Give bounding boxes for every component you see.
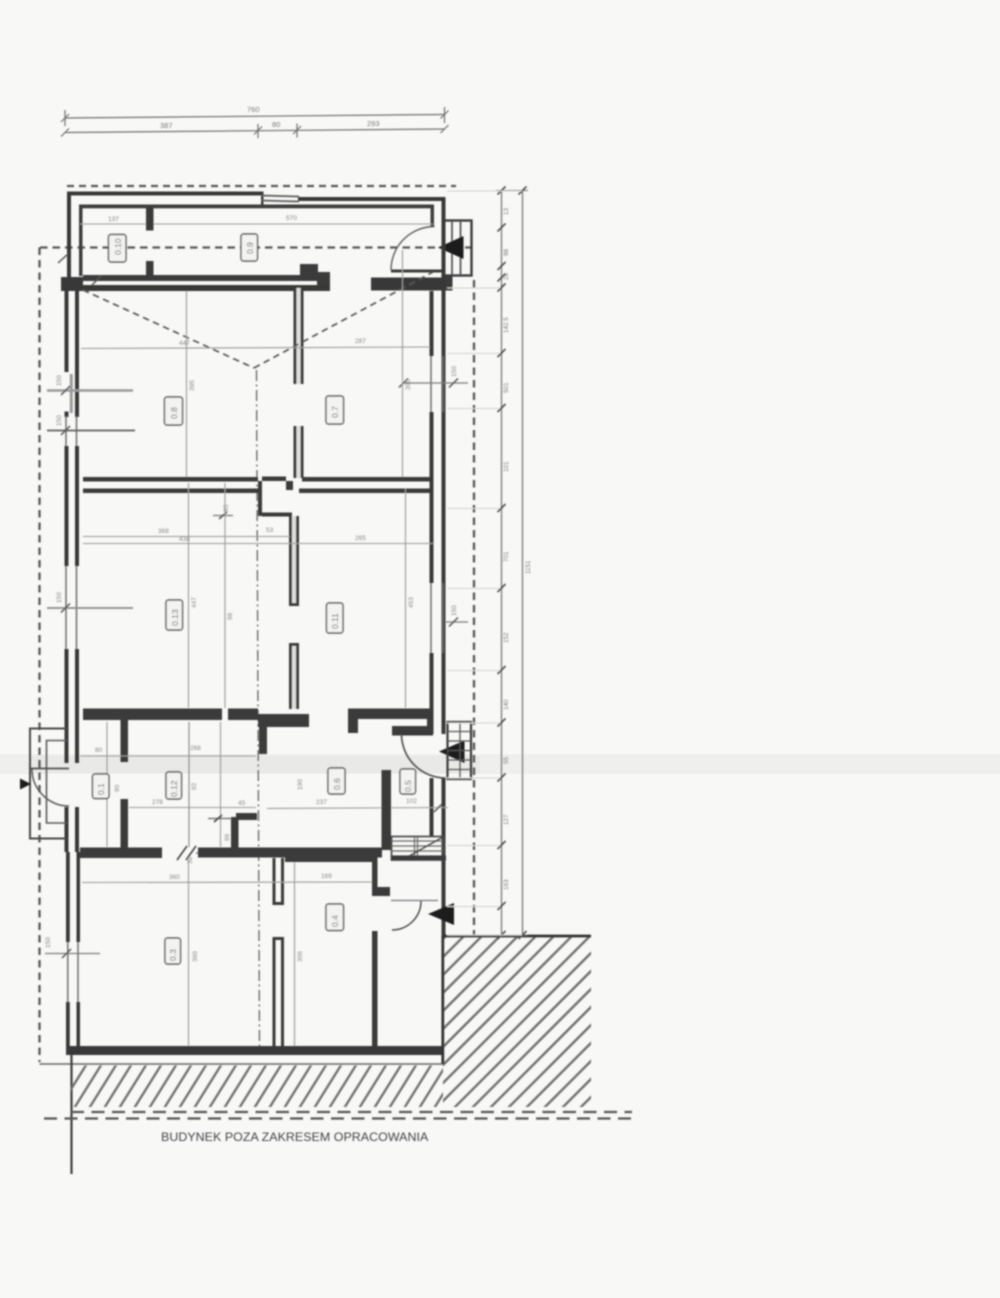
svg-text:150: 150 xyxy=(56,375,63,386)
svg-text:0.7: 0.7 xyxy=(330,406,340,418)
svg-text:95: 95 xyxy=(223,504,230,512)
svg-text:268: 268 xyxy=(190,745,201,752)
svg-text:140: 140 xyxy=(503,699,510,710)
svg-text:142.5: 142.5 xyxy=(503,317,510,333)
svg-text:447: 447 xyxy=(179,340,190,347)
svg-text:0.5: 0.5 xyxy=(403,780,413,792)
svg-text:45: 45 xyxy=(238,800,246,807)
svg-text:0.8: 0.8 xyxy=(169,407,179,419)
svg-text:278: 278 xyxy=(152,799,163,806)
svg-text:0.11: 0.11 xyxy=(330,613,340,629)
svg-text:701: 701 xyxy=(503,551,510,562)
svg-text:293: 293 xyxy=(367,119,380,128)
svg-text:92: 92 xyxy=(191,782,198,790)
svg-text:150: 150 xyxy=(56,592,63,603)
svg-text:501: 501 xyxy=(503,382,510,393)
svg-text:387: 387 xyxy=(160,121,173,130)
svg-text:0.4: 0.4 xyxy=(330,915,340,927)
svg-text:0.13: 0.13 xyxy=(170,609,180,626)
svg-text:80: 80 xyxy=(95,747,103,754)
svg-text:BUDYNEK POZA ZAKRESEM OPRACOWA: BUDYNEK POZA ZAKRESEM OPRACOWANIA xyxy=(161,1130,429,1144)
svg-text:137: 137 xyxy=(108,216,119,223)
svg-text:360: 360 xyxy=(169,874,180,881)
svg-text:265: 265 xyxy=(355,535,366,542)
svg-text:395: 395 xyxy=(189,380,196,391)
svg-text:390: 390 xyxy=(405,379,412,390)
svg-text:360: 360 xyxy=(192,951,199,962)
svg-text:28: 28 xyxy=(503,272,510,280)
svg-text:0.1: 0.1 xyxy=(96,783,106,795)
svg-text:163: 163 xyxy=(503,879,510,890)
svg-text:190: 190 xyxy=(297,779,304,790)
svg-text:0.6: 0.6 xyxy=(332,778,342,790)
svg-text:447: 447 xyxy=(191,597,198,608)
svg-text:453: 453 xyxy=(408,597,415,608)
svg-text:0.9: 0.9 xyxy=(245,242,255,254)
svg-text:169: 169 xyxy=(321,873,332,880)
svg-text:1151: 1151 xyxy=(525,560,532,574)
svg-text:150: 150 xyxy=(451,366,458,377)
svg-text:150: 150 xyxy=(451,605,458,616)
svg-text:152: 152 xyxy=(503,632,510,643)
svg-text:306: 306 xyxy=(297,951,304,962)
svg-text:90: 90 xyxy=(114,784,121,792)
svg-text:98: 98 xyxy=(503,248,510,256)
svg-text:0.10: 0.10 xyxy=(113,238,123,255)
svg-text:80: 80 xyxy=(272,120,280,129)
svg-text:0.12: 0.12 xyxy=(169,780,179,797)
svg-text:287: 287 xyxy=(355,338,366,345)
svg-text:127: 127 xyxy=(503,814,510,825)
svg-text:150: 150 xyxy=(56,415,63,426)
svg-text:368: 368 xyxy=(158,528,169,535)
svg-text:570: 570 xyxy=(286,215,297,222)
svg-text:101: 101 xyxy=(503,461,510,472)
svg-text:0.3: 0.3 xyxy=(168,949,178,961)
svg-text:102: 102 xyxy=(406,798,417,805)
svg-text:53: 53 xyxy=(266,527,274,534)
svg-text:13: 13 xyxy=(503,207,510,215)
svg-text:98: 98 xyxy=(227,612,234,620)
svg-text:150: 150 xyxy=(45,937,52,948)
svg-text:237: 237 xyxy=(316,799,327,806)
svg-text:760: 760 xyxy=(247,105,260,114)
svg-text:96: 96 xyxy=(224,833,231,841)
svg-text:55: 55 xyxy=(503,756,510,764)
